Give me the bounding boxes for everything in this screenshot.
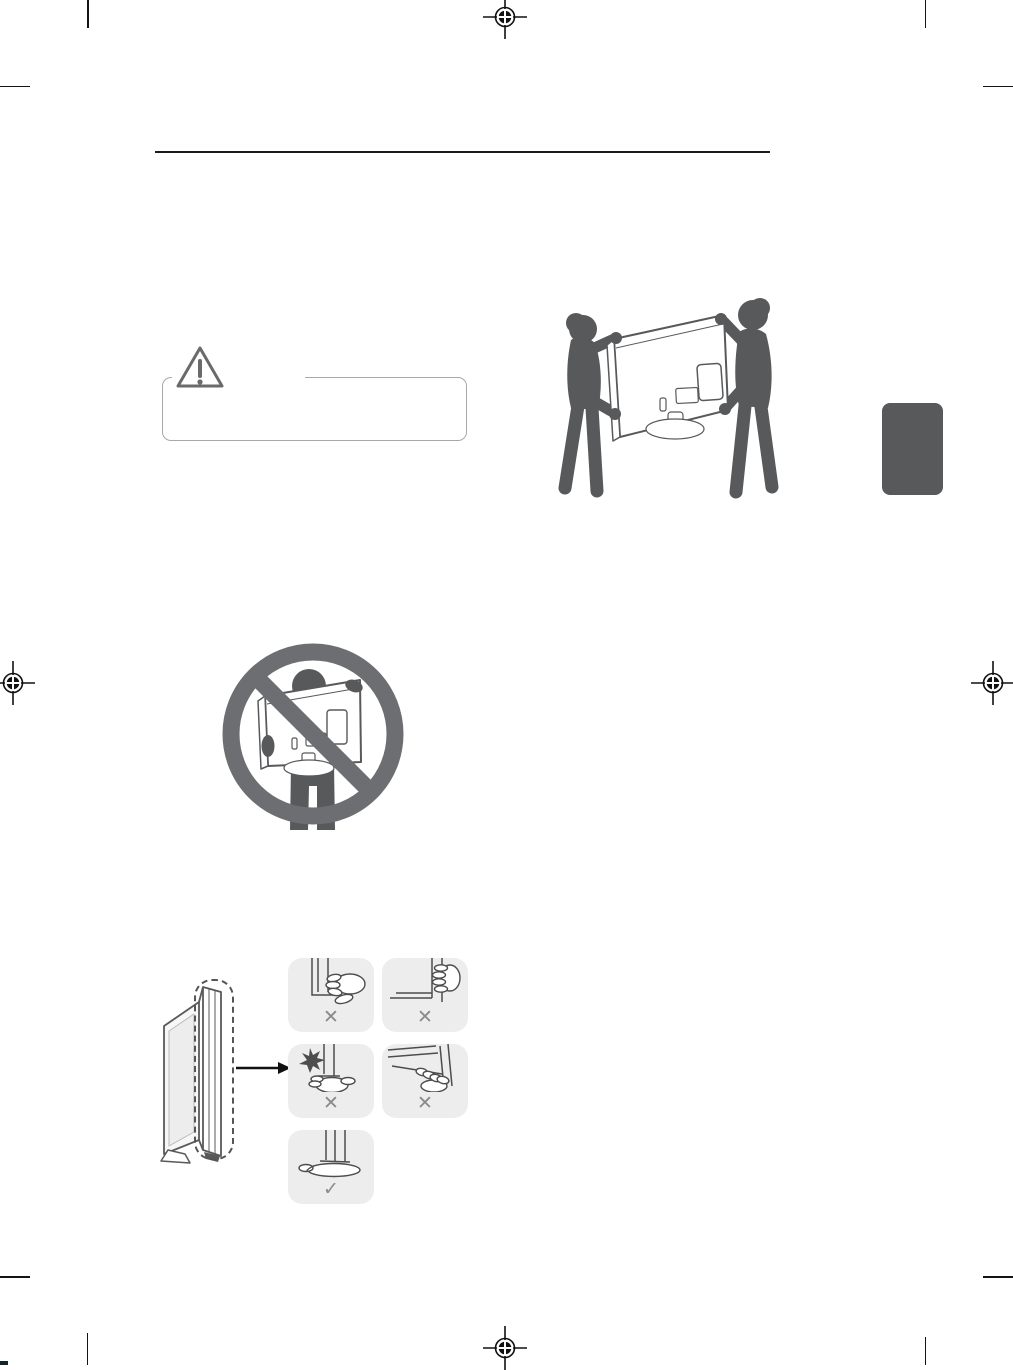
crop-mark-bottom-right-v — [925, 1337, 927, 1365]
grip-bottom-bezel-icon — [382, 1044, 468, 1092]
crop-mark-bottom-left-v — [87, 1333, 89, 1365]
grip-tile-top-edge: ✕ — [382, 958, 468, 1032]
two-person-carry-tv-illustration — [548, 288, 796, 506]
registration-target-icon-bottom — [483, 1326, 527, 1370]
grip-tile-press-screen: ✕ — [288, 1044, 374, 1118]
manual-page: { "page": { "background": "#ffffff", "ki… — [0, 0, 1013, 1365]
grip-tile-front-screen: ✕ — [288, 958, 374, 1032]
registration-target-icon-left — [0, 661, 35, 705]
crop-mark-bottom-right-h — [983, 1276, 1013, 1278]
section-header-rule — [155, 151, 770, 153]
section-tab — [882, 403, 943, 495]
verdict-x: ✕ — [323, 1006, 339, 1030]
left-person-legs — [565, 406, 597, 491]
press-screen-impact-icon — [288, 1044, 374, 1092]
verdict-check: ✓ — [323, 1178, 339, 1202]
registration-target-icon-top — [483, 0, 527, 39]
grip-top-edge-icon — [382, 958, 468, 1006]
grip-front-screen-icon — [288, 958, 374, 1006]
panel-edge-dashed-outline — [194, 979, 234, 1160]
crop-mark-top-right-h — [983, 86, 1013, 88]
tv-back-view — [607, 315, 728, 441]
warning-triangle-icon — [175, 345, 225, 389]
verdict-x: ✕ — [417, 1092, 433, 1116]
crop-mark-top-left-v — [87, 0, 89, 28]
pointer-arrow-icon — [234, 1059, 292, 1077]
print-color-chip — [0, 1361, 8, 1365]
support-bottom-edge-icon — [288, 1130, 374, 1178]
impact-star — [299, 1048, 325, 1073]
verdict-x: ✕ — [417, 1006, 433, 1030]
grip-tile-support-bottom: ✓ — [288, 1130, 374, 1204]
crop-mark-top-left-h — [0, 86, 30, 88]
crop-mark-top-right-v — [925, 0, 927, 28]
registration-target-icon-right — [971, 661, 1013, 705]
no-single-person-carry-illustration — [213, 634, 413, 834]
grip-tile-bottom-bezel: ✕ — [382, 1044, 468, 1118]
right-person-legs — [736, 406, 772, 492]
verdict-x: ✕ — [323, 1092, 339, 1116]
crop-mark-bottom-left-h — [0, 1276, 30, 1278]
